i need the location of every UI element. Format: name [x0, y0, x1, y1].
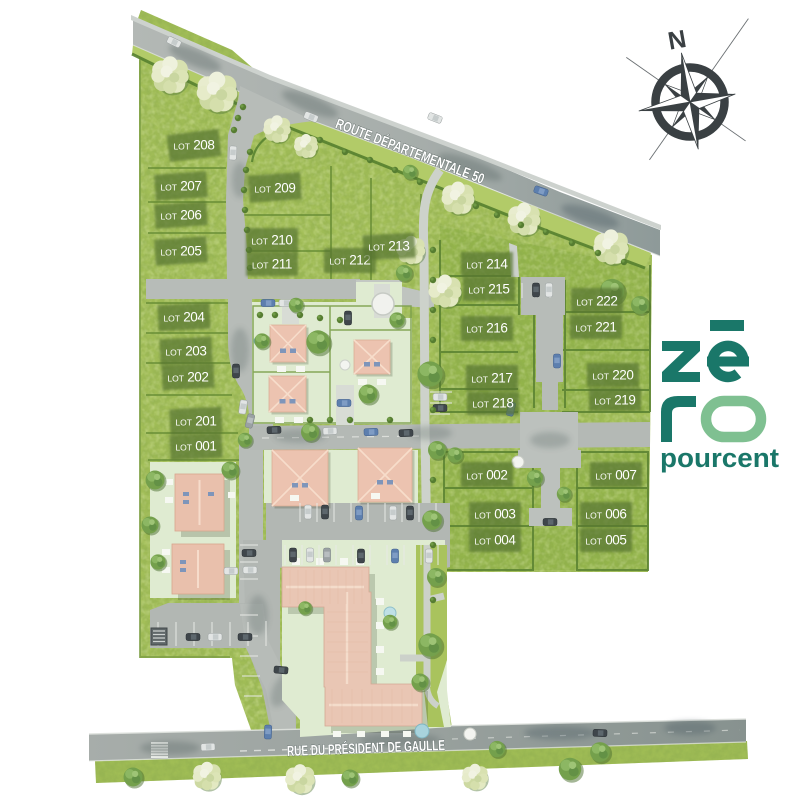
svg-text:pourcent: pourcent — [660, 443, 779, 473]
